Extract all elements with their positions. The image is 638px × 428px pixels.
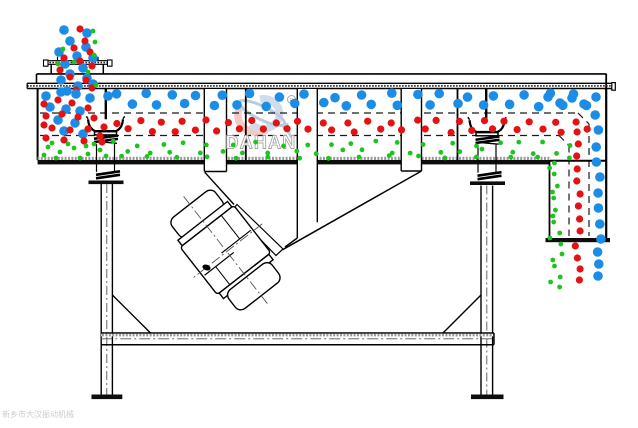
svg-text:新乡市大汉振动机械: 新乡市大汉振动机械 (2, 409, 74, 419)
svg-text:DAHAN: DAHAN (226, 133, 297, 153)
